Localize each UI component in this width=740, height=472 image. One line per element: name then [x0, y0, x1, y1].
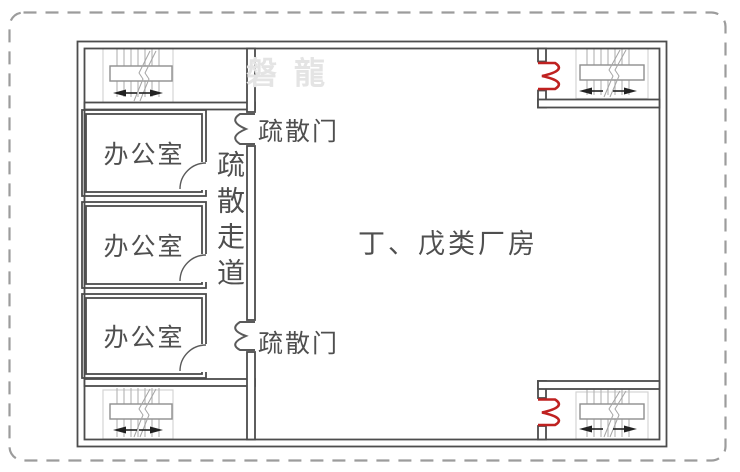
stairwell-wall [85, 103, 256, 110]
fire-door-icon [538, 63, 559, 89]
fire-door-icon [538, 400, 559, 426]
staircase-icon [576, 389, 648, 439]
factory-label: 丁、戊类厂房 [358, 222, 538, 261]
floor-plan: 磐龍 办公室 办公室 办公室 疏散走道 疏散门 疏散门 丁、戊类厂房 [0, 0, 740, 472]
evac-door-icon [235, 114, 255, 144]
staircase-icon [103, 388, 173, 439]
stairwell-wall [538, 381, 660, 389]
stairwell-wall [538, 100, 660, 108]
office-label-1: 办公室 [86, 114, 202, 192]
staircase-icon [576, 49, 648, 99]
office-label-3: 办公室 [86, 298, 202, 374]
staircase-icon [103, 49, 173, 103]
corridor-label: 疏散走道 [209, 150, 249, 302]
evac-door-label-bottom: 疏散门 [258, 324, 339, 360]
evac-door-icon [235, 322, 255, 350]
corridor-wall [247, 352, 255, 440]
stairwell-wall [538, 49, 546, 62]
stairwell-wall [85, 379, 256, 386]
fire-doors [538, 63, 559, 425]
office-label-2: 办公室 [86, 206, 202, 284]
evac-door-label-top: 疏散门 [258, 112, 339, 148]
watermark: 磐龍 [246, 48, 342, 93]
stairwell-wall [538, 426, 546, 440]
